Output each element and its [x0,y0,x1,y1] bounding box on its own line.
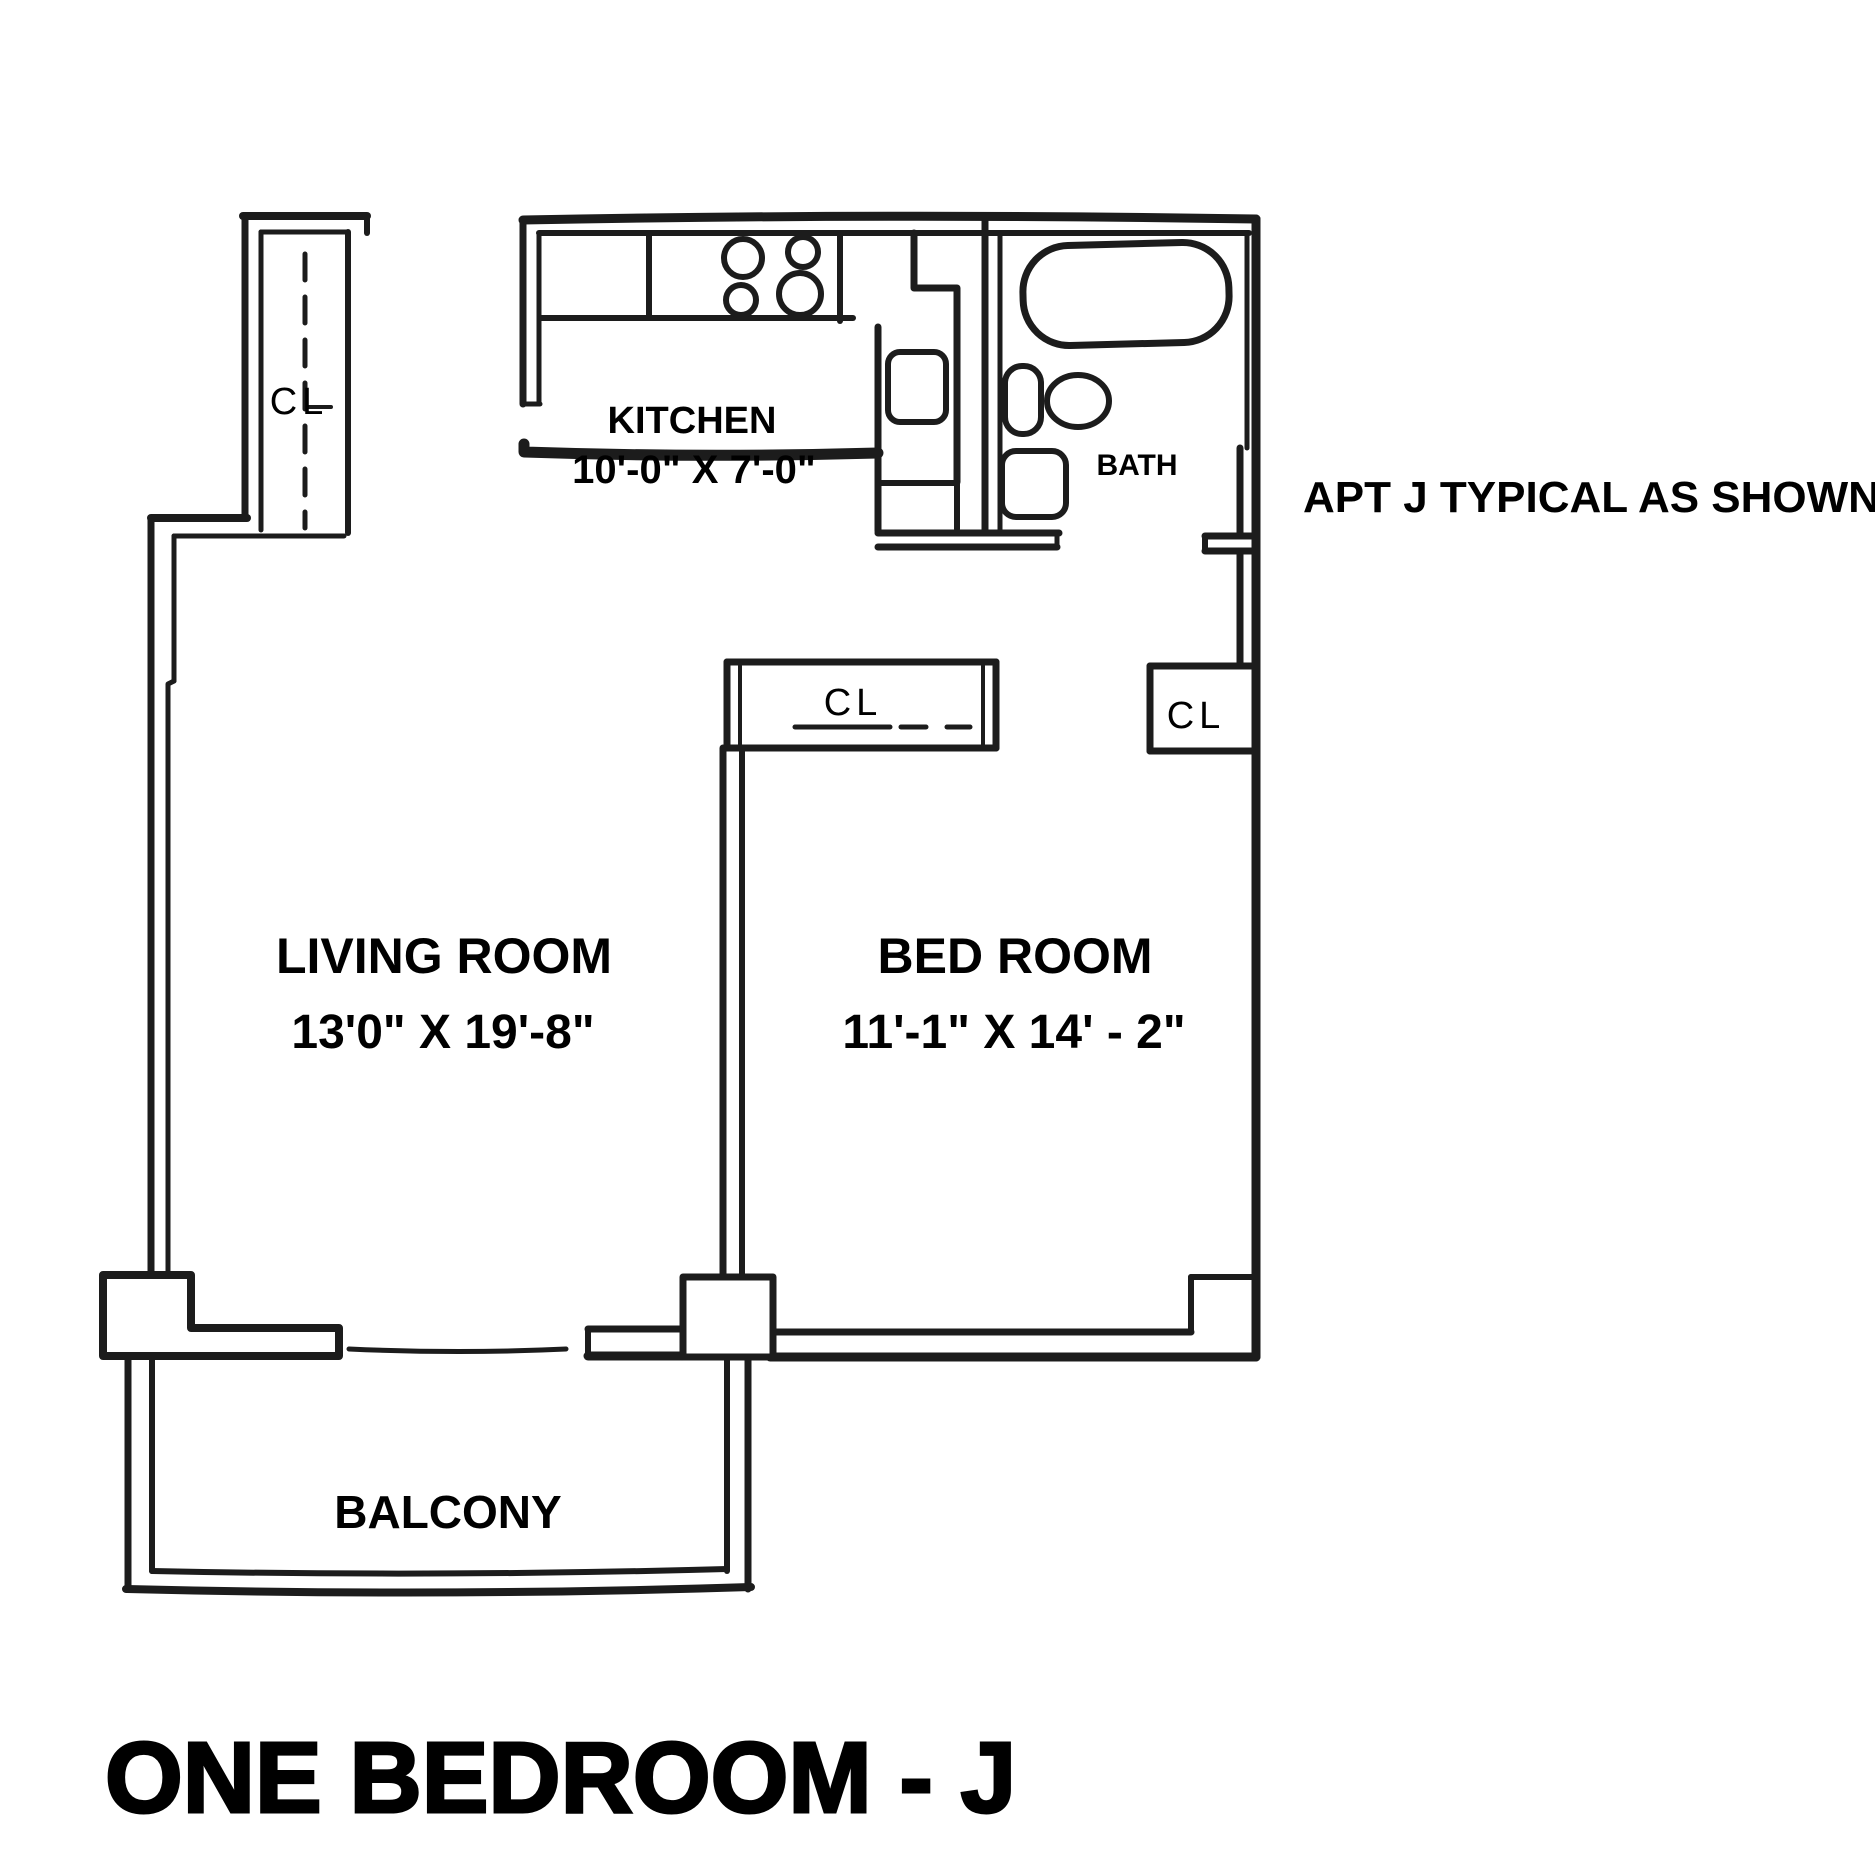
top-wall [523,216,1256,220]
kitchen-dims: 10'-0" X 7'-0" [572,448,816,492]
floor-plan-page: KITCHEN 10'-0" X 7'-0" BATH APT J TYPICA… [0,0,1875,1875]
kitchen-label: KITCHEN [608,400,777,442]
page-title: ONE BEDROOM - J [105,1722,1016,1834]
vanity-icon [1002,451,1066,517]
balcony-railing [126,1356,751,1593]
bedroom-dims: 11'-1" X 14' - 2" [842,1006,1185,1059]
toilet-icon [1047,375,1109,427]
balcony-center-pillar [683,1277,773,1357]
refrigerator-icon [888,352,946,422]
closet-left-walls [243,216,367,533]
bedroom-living-wall [723,748,742,1277]
closet-right-label: CL [1167,695,1226,737]
apartment-note: APT J TYPICAL AS SHOWN [1303,473,1875,522]
living-room-left-wall [151,518,344,1275]
bottom-walls [349,1277,1256,1357]
living-room-label: LIVING ROOM [276,928,612,984]
bath-label: BATH [1096,449,1177,482]
closet-left-label: CL [270,381,329,423]
stove-burners-icon [724,237,821,315]
balcony-left-pillar [103,1275,339,1356]
sliding-door-line [349,1349,566,1352]
entry-door-jamb [1205,448,1256,665]
sink-icon [1005,366,1041,434]
living-room-dims: 13'0" X 19'-8" [291,1006,594,1059]
balcony-label: BALCONY [334,1486,561,1538]
bathtub-icon [1022,241,1231,346]
bedroom-label: BED ROOM [878,928,1153,984]
floor-plan-canvas: KITCHEN 10'-0" X 7'-0" BATH APT J TYPICA… [0,0,1875,1875]
refrigerator-nook [878,233,957,531]
closet-middle-label: CL [824,682,883,724]
